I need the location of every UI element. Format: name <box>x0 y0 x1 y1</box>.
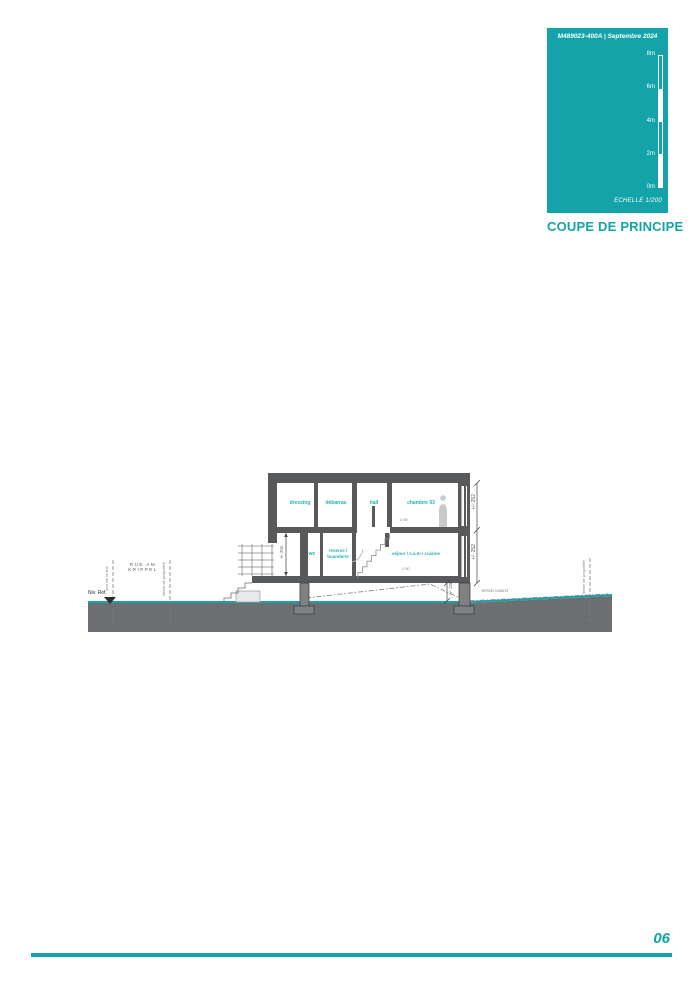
page-number: 06 <box>628 930 670 947</box>
dim-entry-height: +/- 204 <box>279 546 284 559</box>
property-limit-right-label: limite de propriété <box>582 560 586 594</box>
room-label-wc: wc <box>304 551 320 558</box>
terrain-label: terrain naturel <box>482 588 508 593</box>
dim-upper-storey: +/- 252 <box>471 494 477 510</box>
scale-tick-6m: 6m <box>635 84 655 90</box>
room-label-dressing: dressing <box>281 500 319 507</box>
sheet-title: COUPE DE PRINCIPE <box>547 219 671 234</box>
room-label-chambre: chambre 03 <box>398 500 444 507</box>
scale-label: ECHELLE 1/200 <box>614 198 662 204</box>
level-reference-label: Niv. Réf. <box>88 590 107 596</box>
room-label-sejour: séjour / s.à.m / cuisine <box>386 551 446 557</box>
dim-ground-storey: +/- 252 <box>471 544 477 560</box>
drawing-reference: M489023-400A | Septembre 2024 <box>547 33 668 40</box>
scale-tick-8m: 8m <box>635 51 655 57</box>
clear-height-ground: 2.50 <box>402 566 410 571</box>
dim-pilotis-height: +/- 131 <box>448 582 453 595</box>
ground <box>88 595 612 632</box>
title-block: M489023-400A | Septembre 2024 8m 6m 4m 2… <box>547 28 668 213</box>
street-axis-label: axe de la rue <box>105 566 109 591</box>
footer-rule <box>31 953 672 957</box>
interior-stair <box>352 533 390 578</box>
scale-tick-2m: 2m <box>635 151 655 157</box>
building-walls <box>252 473 470 583</box>
drawing-sheet: RUE AM KRIPPEL Niv. Réf. axe de la rue l… <box>0 0 700 990</box>
room-label-debarras: débarras <box>317 500 355 507</box>
scale-bar-segment <box>659 122 662 155</box>
scale-bar-segment <box>659 56 662 89</box>
scale-bar-segment <box>659 89 662 122</box>
scale-bar <box>658 55 663 188</box>
exterior-stair <box>224 544 274 603</box>
scale-tick-0m: 0m <box>635 184 655 190</box>
scale-bar-segment <box>659 154 662 187</box>
clear-height-upper: 2.50 <box>400 517 408 522</box>
room-label-hall: hall <box>362 500 386 507</box>
room-label-reserve-buanderie: réserve / buanderie <box>323 548 353 560</box>
property-limit-left-label: limite de propriété <box>162 562 166 596</box>
scale-tick-4m: 4m <box>635 118 655 124</box>
